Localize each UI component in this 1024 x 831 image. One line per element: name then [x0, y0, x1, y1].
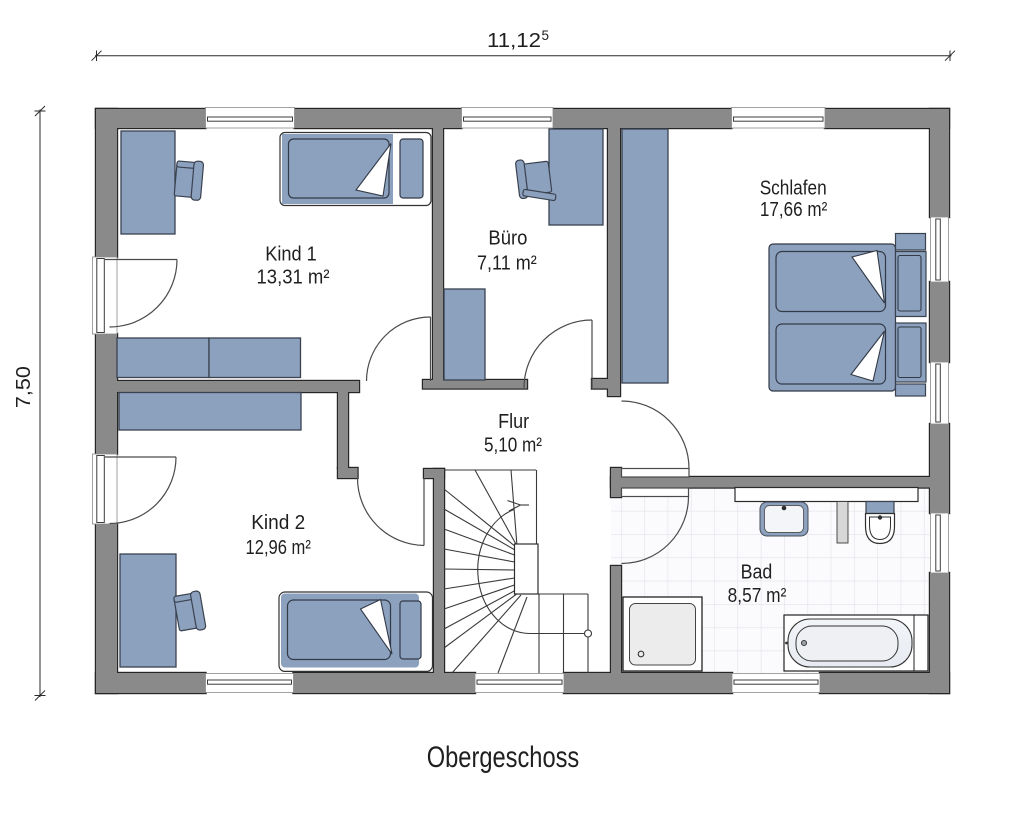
- svg-text:Obergeschoss: Obergeschoss: [427, 741, 580, 774]
- svg-text:Büro: Büro: [488, 227, 527, 249]
- svg-text:Flur: Flur: [498, 411, 529, 433]
- svg-text:13,31 m²: 13,31 m²: [257, 266, 330, 288]
- svg-text:Kind 2: Kind 2: [251, 512, 305, 534]
- svg-text:Bad: Bad: [741, 561, 773, 583]
- svg-text:12,96 m²: 12,96 m²: [246, 537, 312, 559]
- svg-text:17,66 m²: 17,66 m²: [760, 199, 828, 221]
- svg-text:5,10 m²: 5,10 m²: [484, 434, 542, 456]
- svg-text:7,50: 7,50: [12, 366, 35, 408]
- svg-text:8,57 m²: 8,57 m²: [728, 585, 787, 607]
- svg-text:11,12: 11,12: [487, 29, 541, 52]
- svg-text:Schlafen: Schlafen: [760, 177, 827, 199]
- svg-text:Kind 1: Kind 1: [265, 244, 317, 266]
- svg-text:7,11 m²: 7,11 m²: [477, 253, 537, 275]
- svg-text:5: 5: [542, 28, 550, 43]
